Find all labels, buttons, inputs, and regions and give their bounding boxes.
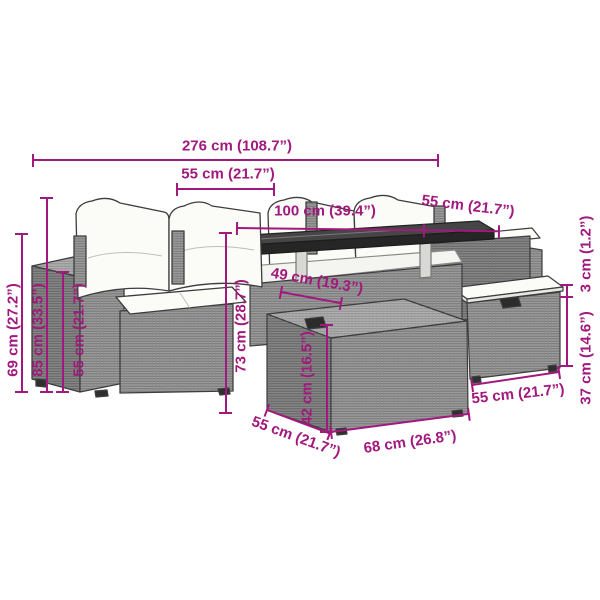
tick bbox=[561, 284, 574, 286]
dim-label-backrest-height: 85 cm (33.5”) bbox=[31, 283, 46, 376]
tick bbox=[561, 365, 574, 367]
dim-label-stool-cushion-thickness: 3 cm (1.2”) bbox=[579, 216, 594, 293]
ottoman-handle bbox=[305, 317, 326, 329]
dimension-diagram: 276 cm (108.7”) 55 cm (21.7”) 100 cm (39… bbox=[0, 0, 600, 600]
dim-line-sofa-height bbox=[225, 233, 227, 413]
tick bbox=[57, 271, 70, 273]
table-leg bbox=[420, 243, 431, 278]
left-sofa bbox=[32, 198, 262, 397]
frame-post bbox=[172, 231, 184, 284]
dim-label-left-seat-width: 55 cm (21.7”) bbox=[181, 167, 274, 182]
back-cushion bbox=[76, 198, 169, 298]
sofa-foot bbox=[218, 388, 230, 395]
tick bbox=[561, 296, 574, 298]
tick bbox=[16, 233, 29, 235]
right-stool bbox=[452, 276, 563, 383]
dim-line-stool-height bbox=[566, 285, 568, 366]
dim-line-armrest-top-height bbox=[62, 272, 64, 392]
tick bbox=[57, 391, 70, 393]
dim-label-armrest-top-height: 55 cm (21.7”) bbox=[72, 283, 87, 376]
dim-line-left-seat-width bbox=[177, 188, 274, 190]
dim-label-armrest-height: 69 cm (27.2”) bbox=[6, 283, 21, 376]
tick bbox=[321, 324, 334, 326]
dim-line-ottoman-height bbox=[326, 325, 328, 432]
tick bbox=[176, 183, 178, 196]
dim-label-sofa-height: 73 cm (28.7”) bbox=[234, 279, 249, 372]
tick bbox=[41, 197, 54, 199]
storage-ottoman bbox=[267, 299, 468, 435]
frame-post bbox=[74, 236, 86, 286]
tick bbox=[236, 221, 238, 234]
dim-label-table-length: 100 cm (39.4”) bbox=[274, 204, 376, 219]
tick bbox=[32, 154, 34, 167]
furniture-illustration bbox=[0, 0, 600, 600]
tick bbox=[16, 391, 29, 393]
sofa-base bbox=[120, 304, 233, 393]
dim-label-total-width: 276 cm (108.7”) bbox=[182, 139, 292, 154]
tick bbox=[220, 412, 233, 414]
tick bbox=[498, 225, 500, 238]
dim-line-total-width bbox=[33, 159, 438, 161]
tick bbox=[273, 183, 275, 196]
tick bbox=[423, 224, 425, 237]
tick bbox=[41, 391, 54, 393]
tick bbox=[437, 154, 439, 167]
dim-label-ottoman-height: 42 cm (16.5”) bbox=[300, 331, 315, 424]
tick bbox=[220, 232, 233, 234]
dim-label-stool-height: 37 cm (14.6”) bbox=[579, 311, 594, 404]
stool-handle bbox=[500, 297, 521, 308]
sofa-foot bbox=[95, 390, 108, 397]
sofa-foot bbox=[36, 379, 46, 387]
